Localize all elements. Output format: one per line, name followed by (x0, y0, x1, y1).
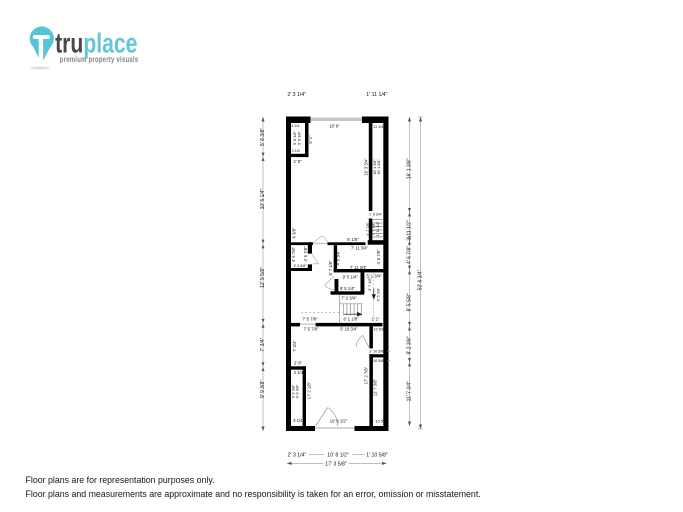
svg-text:1' 9 3/4": 1' 9 3/4" (369, 212, 383, 216)
svg-text:10' 8": 10' 8" (329, 124, 340, 129)
svg-text:11' 7 3/8": 11' 7 3/8" (372, 378, 377, 396)
svg-text:4' 7 7/8": 4' 7 7/8" (366, 222, 370, 236)
svg-text:10' 5 1/4": 10' 5 1/4" (260, 188, 266, 209)
svg-text:4' 6 7/8": 4' 6 7/8" (303, 246, 308, 262)
svg-text:1' 11 1/4": 1' 11 1/4" (376, 221, 380, 236)
svg-text:9' 5 1/4": 9' 5 1/4" (340, 286, 356, 291)
svg-text:17' 2 1/8": 17' 2 1/8" (307, 381, 312, 399)
svg-text:8' 7 1/8": 8' 7 1/8" (328, 260, 333, 276)
svg-text:3' 11 1/2": 3' 11 1/2" (406, 220, 412, 241)
svg-text:9' 5 1/4": 9' 5 1/4" (342, 274, 358, 279)
svg-text:12' 9 5/8": 12' 9 5/8" (260, 267, 266, 288)
svg-text:16' 1 3/8": 16' 1 3/8" (377, 159, 381, 175)
svg-text:Floor plans are for representa: Floor plans are for representation purpo… (26, 475, 215, 485)
svg-text:1' 10 5/8": 1' 10 5/8" (370, 328, 386, 332)
svg-text:7' 3/4": 7' 3/4" (292, 340, 297, 352)
svg-text:11' 7 3/4": 11' 7 3/4" (406, 381, 412, 402)
svg-text:2' 1": 2' 1" (371, 316, 380, 321)
svg-text:9' 9 3/8": 9' 9 3/8" (260, 380, 266, 398)
svg-text:7' 3/4": 7' 3/4" (260, 337, 266, 351)
svg-text:5' 8 3/8": 5' 8 3/8" (293, 131, 297, 145)
svg-text:4' 6 7/8": 4' 6 7/8" (291, 246, 296, 262)
svg-text:6' 1 1/8": 6' 1 1/8" (343, 316, 359, 321)
svg-text:3 1/4: 3 1/4 (292, 149, 300, 153)
svg-text:16' 1 3/8": 16' 1 3/8" (406, 158, 412, 179)
svg-text:5' 10 3/4": 5' 10 3/4" (340, 326, 358, 331)
svg-text:1' 10 5/8": 1' 10 5/8" (366, 452, 388, 458)
svg-text:4' 6 7/8": 4' 6 7/8" (406, 246, 412, 264)
svg-text:premium property visuals: premium property visuals (60, 54, 139, 64)
svg-text:1' 10 5": 1' 10 5" (372, 420, 385, 424)
svg-text:6' 1/8": 6' 1/8" (347, 237, 359, 242)
svg-text:5' 5 5/8": 5' 5 5/8" (294, 264, 308, 268)
svg-text:8' 2 3/8": 8' 2 3/8" (406, 336, 412, 354)
svg-text:7' 11 3/4": 7' 11 3/4" (350, 265, 368, 270)
svg-text:53' 6 3/4": 53' 6 3/4" (417, 269, 423, 290)
svg-text:2' 3 1/4": 2' 3 1/4" (288, 452, 307, 458)
svg-text:2' 8": 2' 8" (293, 159, 302, 164)
svg-text:3 1/4": 3 1/4" (293, 418, 304, 423)
svg-text:3 1/4": 3 1/4" (294, 370, 305, 375)
svg-text:10' 8 1/2": 10' 8 1/2" (327, 452, 349, 458)
svg-text:3' 7 3/8": 3' 7 3/8" (368, 277, 372, 291)
svg-text:17' 3 5/8": 17' 3 5/8" (325, 461, 347, 467)
svg-text:2' 8": 2' 8" (294, 360, 303, 365)
svg-text:7' 11 3/4": 7' 11 3/4" (351, 246, 369, 251)
svg-text:6 3/8": 6 3/8" (292, 227, 297, 238)
svg-text:4' 6 7/8": 4' 6 7/8" (376, 249, 381, 265)
svg-text:5' 8 3/8": 5' 8 3/8" (298, 131, 302, 145)
svg-text:7' 2 3/4": 7' 2 3/4" (341, 295, 357, 300)
svg-text:1' 11 1/4": 1' 11 1/4" (369, 125, 385, 129)
svg-text:2' 3 1/4": 2' 3 1/4" (287, 92, 306, 98)
svg-text:1' 10 5/8": 1' 10 5/8" (369, 359, 385, 363)
svg-text:7' 5 7/8": 7' 5 7/8" (303, 326, 319, 331)
svg-text:3 1/4: 3 1/4 (291, 124, 299, 128)
svg-text:16' 3 3/4": 16' 3 3/4" (363, 158, 368, 176)
svg-text:7' 7 1/8": 7' 7 1/8" (372, 222, 376, 236)
svg-text:1' 11 1/4": 1' 11 1/4" (366, 92, 387, 98)
svg-text:9' 9 3/8": 9' 9 3/8" (296, 384, 300, 398)
svg-text:6' 5 3/8": 6' 5 3/8" (377, 287, 381, 301)
svg-text:1' 10 5/8": 1' 10 5/8" (369, 349, 385, 353)
svg-text:5' 8 3/8": 5' 8 3/8" (260, 128, 266, 146)
svg-text:Floor plans and measurements a: Floor plans and measurements are approxi… (26, 489, 481, 499)
svg-text:10' 8 1/2": 10' 8 1/2" (330, 418, 348, 423)
svg-text:17' 2 7/8": 17' 2 7/8" (363, 366, 368, 384)
svg-text:6' 1": 6' 1" (308, 135, 313, 144)
svg-text:8' 5 5/8": 8' 5 5/8" (406, 293, 412, 311)
svg-text:4' 6 3/8": 4' 6 3/8" (336, 250, 341, 266)
svg-text:7' 5 7/8": 7' 5 7/8" (302, 317, 318, 322)
